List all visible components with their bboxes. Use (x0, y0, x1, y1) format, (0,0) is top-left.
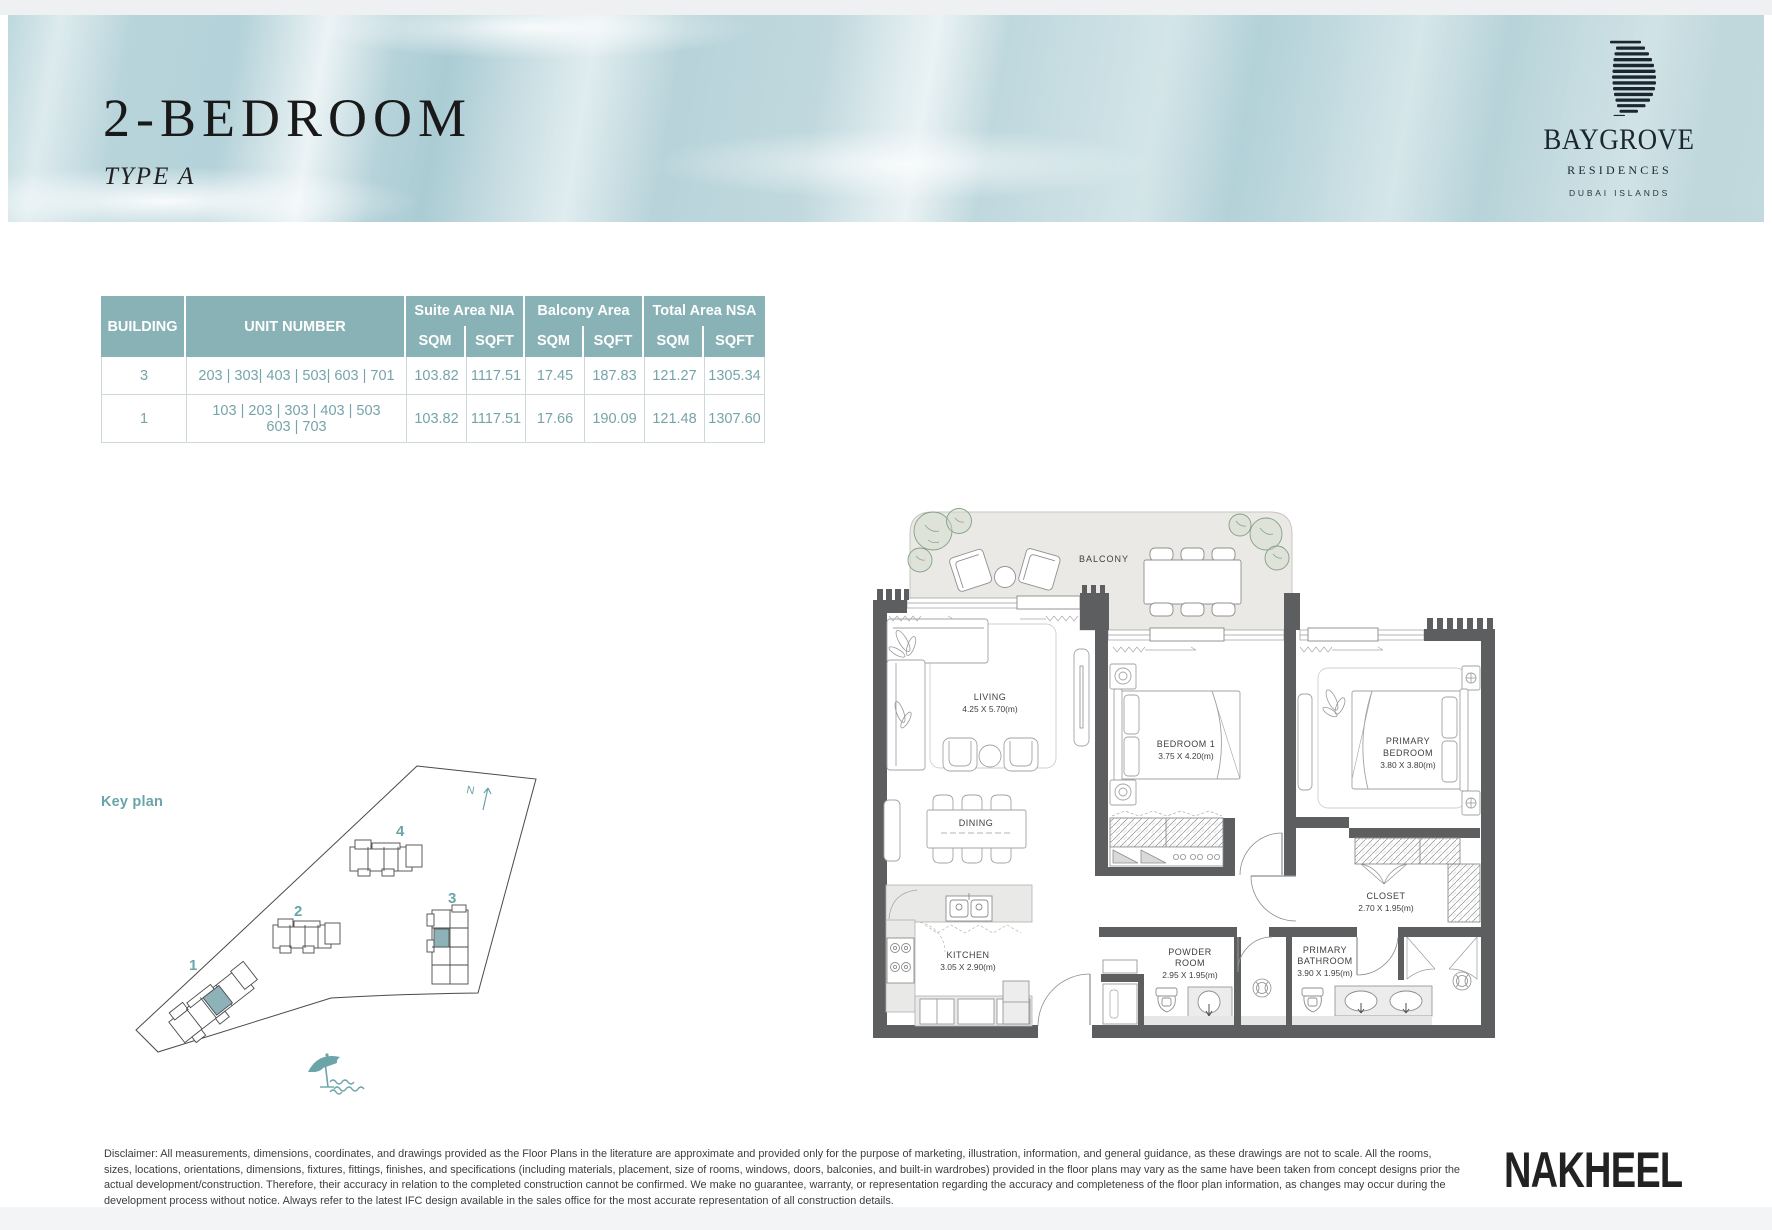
svg-text:2.70 X 1.95(m): 2.70 X 1.95(m) (1358, 903, 1414, 913)
svg-text:3.90 X 1.95(m): 3.90 X 1.95(m) (1297, 968, 1353, 978)
svg-text:PRIMARY: PRIMARY (1386, 736, 1430, 746)
svg-text:BEDROOM: BEDROOM (1383, 748, 1433, 758)
svg-text:LIVING: LIVING (974, 692, 1007, 702)
svg-text:BEDROOM 1: BEDROOM 1 (1157, 739, 1216, 749)
svg-text:1: 1 (189, 957, 197, 974)
svg-text:ROOM: ROOM (1175, 958, 1205, 968)
svg-text:DINING: DINING (959, 818, 994, 828)
svg-text:2.95 X 1.95(m): 2.95 X 1.95(m) (1162, 970, 1218, 980)
svg-text:3.80 X 3.80(m): 3.80 X 3.80(m) (1380, 760, 1436, 770)
svg-text:PRIMARY: PRIMARY (1303, 945, 1347, 955)
svg-text:KITCHEN: KITCHEN (946, 950, 989, 960)
svg-text:CLOSET: CLOSET (1366, 891, 1405, 901)
svg-text:3.75 X 4.20(m): 3.75 X 4.20(m) (1158, 751, 1214, 761)
svg-text:3: 3 (448, 890, 456, 907)
svg-text:BATHROOM: BATHROOM (1297, 956, 1352, 966)
svg-text:4: 4 (396, 823, 405, 840)
svg-text:4.25 X 5.70(m): 4.25 X 5.70(m) (962, 704, 1018, 714)
svg-text:3.05 X 2.90(m): 3.05 X 2.90(m) (940, 962, 996, 972)
svg-text:BALCONY: BALCONY (1079, 554, 1129, 564)
svg-text:POWDER: POWDER (1168, 947, 1212, 957)
svg-text:2: 2 (294, 903, 302, 920)
